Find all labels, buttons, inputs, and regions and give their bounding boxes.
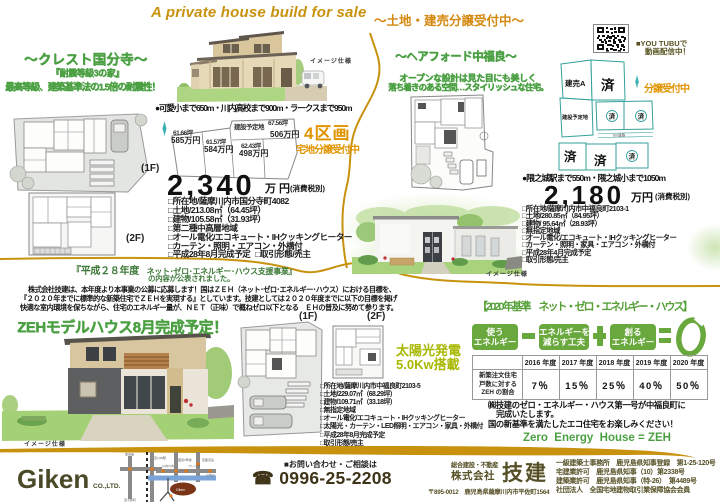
svg-text:済: 済 bbox=[564, 149, 577, 164]
svg-text:建売А: 建売А bbox=[564, 78, 586, 88]
svg-text:Giken: Giken bbox=[176, 488, 185, 492]
svg-text:国道3号線: 国道3号線 bbox=[178, 457, 192, 462]
svg-text:済: 済 bbox=[629, 152, 636, 161]
svg-text:川内川: 川内川 bbox=[206, 472, 215, 477]
svg-text:プレハブ: プレハブ bbox=[188, 463, 200, 468]
svg-text:至小倉町: 至小倉町 bbox=[124, 497, 136, 502]
svg-text:至川内駅: 至川内駅 bbox=[154, 455, 166, 460]
svg-text:6m道路: 6m道路 bbox=[613, 133, 626, 138]
svg-text:済: 済 bbox=[609, 112, 616, 121]
svg-text:川内川内: 川内川内 bbox=[162, 463, 174, 468]
svg-text:至市街: 至市街 bbox=[125, 452, 134, 457]
svg-text:済: 済 bbox=[594, 153, 607, 168]
svg-text:至鹿児島: 至鹿児島 bbox=[202, 457, 214, 462]
svg-text:済: 済 bbox=[601, 77, 615, 93]
svg-text:済: 済 bbox=[638, 112, 645, 121]
svg-text:建設予定地: 建設予定地 bbox=[562, 113, 589, 121]
